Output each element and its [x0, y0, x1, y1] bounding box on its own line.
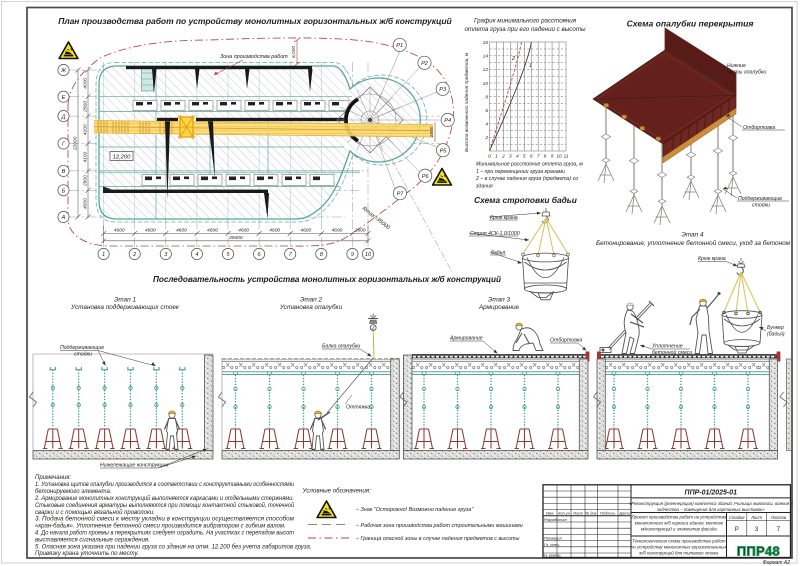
- svg-text:4000: 4000: [83, 78, 89, 89]
- svg-text:9: 9: [351, 252, 354, 258]
- svg-text:10: 10: [365, 252, 372, 258]
- svg-text:Нижележащие конструкции: Нижележащие конструкции: [100, 463, 168, 469]
- svg-text:бетонной смеси: бетонной смеси: [652, 349, 692, 356]
- svg-text:Лист: Лист: [750, 515, 762, 520]
- svg-text:Армирование: Армирование: [478, 304, 520, 311]
- svg-text:3: 3: [509, 154, 512, 160]
- svg-text:Р: Р: [735, 527, 739, 533]
- svg-text:6: 6: [485, 108, 488, 114]
- svg-text:4: 4: [195, 252, 198, 258]
- svg-text:1: 1: [495, 154, 498, 160]
- svg-text:Кол.уч: Кол.уч: [558, 511, 570, 516]
- svg-text:щиты опалубки: щиты опалубки: [727, 70, 766, 76]
- svg-text:В: В: [62, 169, 66, 175]
- svg-text:5. Опасная зона указана при па: 5. Опасная зона указана при падении груз…: [35, 544, 312, 550]
- svg-text:2: 2: [501, 154, 505, 160]
- svg-text:10: 10: [556, 154, 562, 160]
- svg-text:зодчества – помещения для карт: зодчества – помещения для картинных выст…: [656, 507, 765, 512]
- svg-text:2600: 2600: [354, 228, 366, 234]
- svg-text:0: 0: [488, 154, 491, 160]
- svg-text:Н. контр.: Н. контр.: [544, 552, 562, 557]
- svg-text:4600: 4600: [331, 228, 342, 234]
- svg-text:Схема опалубки перекрытия: Схема опалубки перекрытия: [627, 19, 754, 29]
- svg-text:отлета груза при его падении с: отлета груза при его падении с высоты: [464, 26, 586, 33]
- svg-text:Балка опалубки: Балка опалубки: [322, 344, 360, 350]
- svg-text:Б: Б: [62, 189, 66, 195]
- svg-text:4: 4: [485, 122, 488, 128]
- svg-text:Этап 4: Этап 4: [681, 232, 703, 239]
- svg-text:Проверил: Проверил: [544, 536, 563, 541]
- svg-text:Примечания:: Примечания:: [35, 475, 71, 481]
- svg-text:4000: 4000: [83, 198, 89, 209]
- svg-text:здания: здания: [475, 183, 493, 189]
- svg-text:Отбортовка: Отбортовка: [550, 338, 582, 344]
- svg-text:План производства работ по уст: План производства работ по устройству мо…: [58, 16, 452, 26]
- svg-text:Этап 1: Этап 1: [114, 297, 136, 304]
- svg-text:4100: 4100: [83, 124, 89, 135]
- svg-text:Р2: Р2: [421, 61, 429, 67]
- svg-text:м/конструкций и элементов фаса: м/конструкций и элементов фасада: [641, 527, 717, 532]
- svg-text:Ж: Ж: [60, 68, 67, 74]
- svg-text:Минимальное расстояние отлета: Минимальное расстояние отлета груза, м: [476, 162, 583, 168]
- svg-text:22000: 22000: [73, 136, 79, 151]
- svg-text:5: 5: [523, 154, 526, 160]
- svg-text:Р3: Р3: [439, 87, 447, 93]
- svg-text:Дата: Дата: [618, 511, 630, 516]
- svg-text:4. До начала работ проемы: 4. До начала работ проемы в перекрытиях …: [35, 531, 294, 537]
- svg-text:Бункер: Бункер: [767, 325, 784, 331]
- svg-text:Оттяжка: Оттяжка: [346, 405, 370, 411]
- svg-text:8: 8: [544, 154, 547, 160]
- svg-text:6,000: 6,000: [291, 46, 297, 58]
- svg-text:Р7: Р7: [397, 191, 405, 197]
- svg-text:Армирование: Армирование: [449, 336, 483, 342]
- svg-text:4600: 4600: [269, 228, 280, 234]
- svg-text:стойки: стойки: [752, 202, 770, 209]
- svg-text:– Знак "Осторожно! Возможно па: – Знак "Осторожно! Возможно падение груз…: [355, 507, 474, 513]
- svg-text:«кран-бадья». Уплотнение бетон: «кран-бадья». Уплотнение бетонной смеси …: [35, 523, 286, 530]
- svg-text:(бадья): (бадья): [767, 332, 785, 338]
- svg-text:4600: 4600: [145, 228, 156, 234]
- svg-text:сварки и с помощью вязальной п: сварки и с помощью вязальной проволоки.: [35, 509, 155, 516]
- svg-text:2 – в случае падения груза (пр: 2 – в случае падения груза (предмета) со: [475, 176, 578, 182]
- svg-text:Нижние: Нижние: [727, 63, 746, 69]
- svg-text:1: 1: [102, 252, 105, 258]
- svg-text:Бетонирование, уплотнение бето: Бетонирование, уплотнение бетонной смеси…: [596, 239, 791, 247]
- svg-text:– Рабочая зона производства ра: – Рабочая зона производства работ строит…: [355, 523, 523, 529]
- svg-text:4600: 4600: [114, 228, 125, 234]
- svg-text:Разработал: Разработал: [544, 517, 567, 522]
- svg-text:10: 10: [483, 81, 489, 87]
- svg-text:Листов: Листов: [770, 515, 787, 520]
- svg-text:1 – при перемещении груза кран: 1 – при перемещении груза кранами: [476, 169, 565, 175]
- svg-text:бетонируемого элемента.: бетонируемого элемента.: [35, 489, 111, 495]
- svg-text:Р4: Р4: [444, 118, 451, 124]
- svg-text:2900: 2900: [83, 101, 89, 113]
- svg-text:Д: Д: [61, 114, 66, 120]
- svg-text:Зона производства работ: Зона производства работ: [220, 54, 288, 60]
- svg-text:14: 14: [483, 54, 489, 60]
- svg-text:Р1: Р1: [396, 43, 403, 49]
- svg-text:4600: 4600: [207, 228, 218, 234]
- svg-text:– Граница опасной зоны в случа: – Граница опасной зоны в случае падения …: [355, 535, 519, 542]
- svg-text:График минимального расстояния: График минимального расстояния: [474, 18, 577, 25]
- svg-text:4: 4: [516, 154, 519, 160]
- svg-text:3. Подача бетонной смеси к мес: 3. Подача бетонной смеси к месту укладки…: [35, 516, 294, 523]
- svg-text:выставляется сигнальные огражд: выставляется сигнальные ограждения.: [35, 537, 150, 543]
- svg-text:Привязку крана уточнить по мес: Привязку крана уточнить по месту.: [35, 551, 139, 557]
- svg-text:39400: 39400: [229, 235, 243, 241]
- svg-text:4600: 4600: [238, 228, 249, 234]
- svg-text:Стадия: Стадия: [729, 515, 745, 520]
- svg-text:ППР48: ППР48: [737, 544, 780, 559]
- svg-text:№ док.: № док.: [585, 511, 598, 516]
- svg-text:Подпись: Подпись: [600, 511, 615, 516]
- svg-text:Условные обозначения:: Условные обозначения:: [302, 488, 372, 495]
- svg-text:ППР-01/2025-01: ППР-01/2025-01: [685, 490, 738, 497]
- svg-text:16: 16: [483, 40, 489, 46]
- svg-text:2. Армирование монолитных конс: 2. Армирование монолитных конструкций вы…: [34, 495, 294, 502]
- svg-text:4600: 4600: [300, 228, 311, 234]
- svg-text:Высота возможного падения пред: Высота возможного падения предметов, м: [464, 52, 470, 152]
- svg-text:Р6: Р6: [422, 174, 430, 180]
- svg-text:1. Установка щитов опалубки пр: 1. Установка щитов опалубки производится…: [35, 482, 295, 488]
- svg-text:Изм.: Изм.: [546, 511, 554, 516]
- svg-text:8: 8: [485, 94, 488, 100]
- svg-text:1: 1: [529, 63, 532, 69]
- svg-text:Лист: Лист: [572, 511, 584, 516]
- svg-text:Установка опалубки: Установка опалубки: [279, 303, 343, 311]
- svg-text:9: 9: [551, 154, 554, 160]
- svg-text:Проект производства работ на у: Проект производства работ на устройство: [631, 515, 726, 520]
- svg-text:Стыковые соединения арматуры в: Стыковые соединения арматуры выполняются…: [35, 502, 295, 509]
- svg-text:Этап 2: Этап 2: [300, 297, 322, 304]
- svg-text:Этап 3: Этап 3: [488, 297, 510, 304]
- svg-text:Поддерживающие: Поддерживающие: [60, 345, 104, 351]
- svg-text:6: 6: [530, 154, 533, 160]
- svg-text:«Реконструкция (регенерация) к: «Реконструкция (регенерация) комплекса з…: [629, 501, 794, 506]
- svg-text:1600: 1600: [429, 126, 435, 137]
- svg-text:Формат А2: Формат А2: [763, 560, 791, 566]
- svg-text:стойки: стойки: [74, 351, 92, 358]
- svg-text:А: А: [61, 215, 66, 221]
- svg-text:Е: Е: [62, 95, 66, 101]
- svg-text:Последовательность устройства: Последовательность устройства монолитных…: [153, 274, 501, 284]
- svg-text:12: 12: [483, 67, 489, 73]
- svg-text:Крюк крана: Крюк крана: [698, 256, 726, 262]
- svg-text:Схема строповки бадьи: Схема строповки бадьи: [474, 195, 577, 205]
- svg-text:Установка поддерживающих стоек: Установка поддерживающих стоек: [70, 303, 180, 311]
- svg-text:Р5: Р5: [440, 148, 448, 154]
- svg-text:11: 11: [564, 154, 569, 160]
- svg-text:монолитного ж/б каркаса здания: монолитного ж/б каркаса здания, монтаж: [635, 521, 724, 526]
- svg-text:по устройству монолитных гориз: по устройству монолитных горизонтальных: [631, 545, 727, 550]
- svg-text:Гл. спец.: Гл. спец.: [544, 542, 560, 547]
- svg-text:ж/б конструкций для типового э: ж/б конструкций для типового этажа: [638, 551, 719, 556]
- svg-text:12,200: 12,200: [113, 155, 132, 161]
- svg-text:4600: 4600: [176, 228, 187, 234]
- svg-text:4100: 4100: [83, 151, 89, 162]
- svg-text:2: 2: [484, 135, 488, 141]
- svg-text:Технологическая схема производ: Технологическая схема производства работ: [632, 539, 726, 544]
- svg-text:2900: 2900: [83, 175, 89, 187]
- svg-text:7: 7: [537, 154, 540, 160]
- svg-text:Уплотнение: Уплотнение: [652, 344, 683, 350]
